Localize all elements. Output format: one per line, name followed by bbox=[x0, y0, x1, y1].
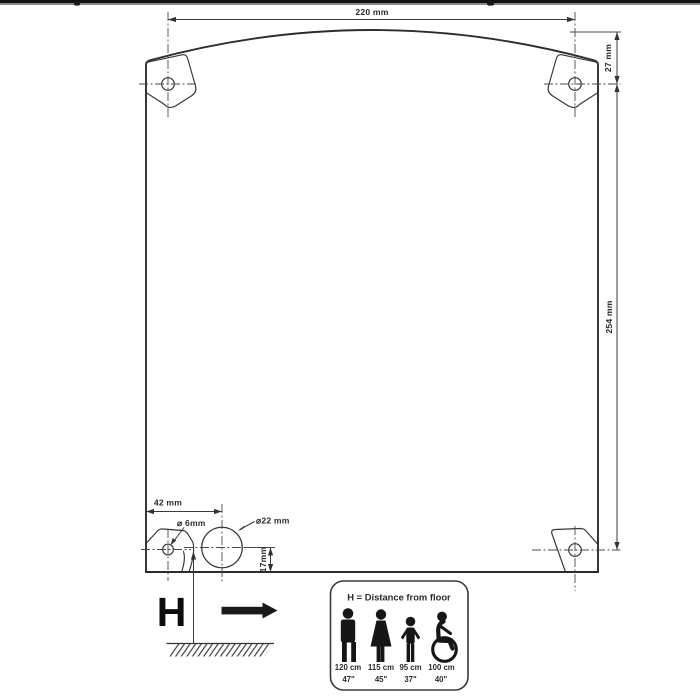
cropped-text-fragment bbox=[487, 1, 494, 6]
legend-title: H = Distance from floor bbox=[347, 592, 451, 603]
legend-cm-child: 95 cm bbox=[399, 663, 421, 672]
height-symbol-label: H bbox=[157, 589, 187, 635]
dim-label-dia22: ⌀22 mm bbox=[256, 516, 290, 526]
dim-label-254: 254 mm bbox=[604, 300, 614, 333]
legend-in-child: 37" bbox=[404, 675, 417, 684]
legend-cm-woman: 115 cm bbox=[368, 663, 394, 672]
floor-ground-symbol bbox=[167, 644, 275, 657]
dim-label-42: 42 mm bbox=[154, 498, 182, 508]
mounting-template-drawing: 220 mm 27 mm 254 mm 42 mm ⌀ 6mm ⌀22 mm bbox=[0, 0, 700, 700]
legend-cm-man: 120 cm bbox=[335, 663, 362, 672]
dimension-side-height-254: 254 mm bbox=[604, 84, 620, 550]
legend-box: H = Distance from floor bbox=[331, 581, 469, 690]
dim-label-220: 220 mm bbox=[355, 7, 388, 17]
mounting-plate-outline bbox=[146, 30, 598, 572]
direction-arrow bbox=[222, 603, 278, 619]
legend-in-wheelchair: 40" bbox=[435, 675, 448, 684]
dim-label-27: 27 mm bbox=[603, 44, 613, 72]
dim-label-17: 17mm bbox=[258, 547, 268, 573]
dim-label-dia6: ⌀ 6mm bbox=[177, 518, 206, 528]
page-header-rule bbox=[0, 0, 700, 6]
dimension-width-220: 220 mm bbox=[168, 7, 575, 22]
cropped-text-fragment bbox=[74, 1, 80, 6]
legend-in-woman: 45" bbox=[375, 675, 388, 684]
installation-drawing-page: 220 mm 27 mm 254 mm 42 mm ⌀ 6mm ⌀22 mm bbox=[0, 0, 700, 700]
legend-in-man: 47" bbox=[342, 675, 355, 684]
legend-cm-wheelchair: 100 cm bbox=[428, 663, 455, 672]
header-bar-shadow bbox=[0, 3, 700, 5]
header-bar bbox=[0, 0, 700, 3]
